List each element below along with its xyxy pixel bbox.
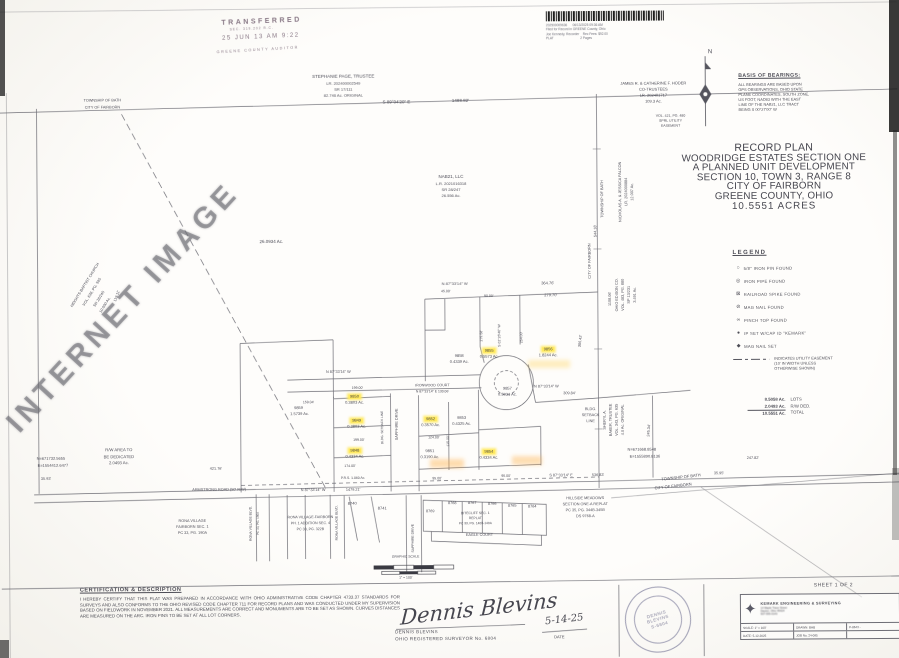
legend-label: MAG NAIL FOUND [744,304,784,309]
plat-label: 82.746 Ac. ORIGINAL [324,94,363,98]
plat-label: 309.84' [563,392,575,396]
iron-pin-found-icon: ○ [733,265,744,271]
sheet-number: SHEET 1 OF 2 [814,582,853,588]
acreage-total-row: 10.5551 Ac.TOTAL [748,409,834,417]
easement-note: INDICATES UTILITY EASEMENT(10' IN WIDTH … [774,355,833,370]
firm-name: KEMARK ENGINEERING & SURVEYING [760,601,840,606]
recorder-stamp: 202500009636 06/13/2025 09:36 AMFiled fo… [546,10,696,40]
plat-label: 90.00' [484,295,493,299]
plat-label: 9849 [351,419,363,423]
plat-label: PC 33, PG. 190A [178,532,207,536]
compass-logo-icon: ✦ [744,601,757,616]
pinch-top-found-icon: ∞ [733,317,744,323]
legend-label: MAG NAIL SET [744,343,777,348]
text-line: 25 JUN 13 AM 9:22 [222,30,352,41]
plat-label: 12.007 Ac. [631,183,635,201]
firm-title-block: ✦ KEMARK ENGINEERING & SURVEYING 14 Mapl… [740,593,899,640]
plat-label: SAPPHIRE DRIVE [412,524,416,552]
plat-label: 0.3570 Ac. [421,423,440,427]
plat-label: 9853 [457,416,466,420]
plat-label: 8741 [378,506,387,510]
legend-label: 5/8" IRON PIN FOUND [744,265,793,270]
surveyor-seal-center: DENNISBLEVINSS-6804 [628,590,688,650]
plat-label: CITY OF FAIRBORN [589,243,593,278]
text-line: OTHERWISE SHOWN) [774,365,832,370]
firm-table-cell: DRAWN: BHB [793,623,846,630]
plat-label: 8767 [468,502,476,506]
certification-block: CERTIFICATION & DESCRIPTION I HEREBY CER… [80,585,400,619]
scan-artifact [889,0,899,132]
plat-label: SR 28/247 [442,188,461,192]
plat-label: 279.58' [480,330,484,341]
plat-label: BAKER, TRUSTEE [610,404,614,437]
plat-label: 109.3 Ac. [645,100,662,104]
scan-artifact [893,130,897,475]
plat-label: SAPPHIRE DRIVE [396,408,400,440]
plat-label: 544.18' [594,225,598,237]
plat-label: 8740 [348,502,357,506]
plat-label: TOWNSHIP OF BATH [601,180,605,218]
plat-label: N 87°33'14" W [326,371,351,375]
plat-label: GRAPHIC SCALE [392,556,420,560]
plat-label: S 89°04'20" E [383,100,411,105]
mag-nail-found-icon: ⊘ [733,304,744,310]
plat-label: 26.556 Ac. [442,194,461,198]
plat-label: 9857 [503,387,512,391]
certification-title: CERTIFICATION & DESCRIPTION [80,585,400,593]
highlighter-smudge [430,459,464,468]
plat-label: E=1555890.8136 [630,455,661,459]
plat-label: 8766 [488,503,496,507]
plat-label: BLDG. [585,408,596,412]
plat-label: 0.3803 Ac. [347,425,366,429]
plat-label: 1" = 100' [399,577,412,580]
plat-label: IRONWOOD COURT [415,384,449,388]
plat-label: LR. 202400002549 [326,82,360,86]
plat-label: JAMES R. & CATHERINE F. HODER [620,81,686,85]
plat-label: 247.82' [747,457,759,461]
plat-label: OHIO EDISON CO. [616,278,620,311]
plat-label: 9851 [425,449,434,453]
plat-label: R/W AREA TO [105,448,132,452]
auditor-transfer-stamp: TRANSFERREDSEC. 319.202 R.C.25 JUN 13 AM… [221,14,352,53]
plat-label: BE DEDICATED [104,455,135,459]
plat-label: 279.70' [544,293,557,297]
plat-label: SR 17/111 [334,88,352,92]
page-title: RECORD PLANWOODRIDGE ESTATES SECTION ONE… [654,143,894,212]
plat-label: N=671732.5655 [37,457,66,461]
plat-label: DS 9768-A [576,515,595,519]
surveyor-name: DENNIS BLEVINS [395,629,438,634]
legend-label: IRON PIPE FOUND [744,278,786,283]
plat-label: RONA VILLAGE BLVD. [250,506,254,541]
plat-label: 0.4339 Ac. [450,360,469,364]
plat-label: 1488.82' [452,99,469,104]
firm-table-cell: DATE: 5-12-2025 [741,632,793,639]
plat-label: SECTION ONE-A REPLAT [563,503,608,507]
plat-label: BLDG. SETBACK LINE [381,411,384,444]
highlighter-smudge [512,456,542,465]
plat-label: N 87°33'14" W [534,385,559,389]
plat-label: SHERYL A. [604,410,608,429]
firm-table-row: SCALE: 1" = 100'DRAWN: BHBP-8643 - [741,622,899,631]
legend-item: ⊘MAG NAIL FOUND [733,303,895,310]
legend-label: PINCH TOP FOUND [744,317,787,322]
plat-label: RONA VILLAGE [178,520,206,524]
railroad-spike-found-icon: ⊠ [733,291,744,297]
plat-label: VOL. 483, PG. 880 [622,279,626,311]
acreage-label: TOTAL [791,410,805,418]
plat-label: 0.4334 Ac. [479,456,498,460]
legend-easement: INDICATES UTILITY EASEMENT(10' IN WIDTH … [733,355,895,371]
plat-label: 536.83' [592,474,604,478]
plat-label: 0.4325 Ac. [452,422,471,426]
basis-of-bearings-title: BASIS OF BEARINGS: [738,72,856,79]
plat-label: 1479.21' [346,489,360,493]
plat-label: S 02°26'46" W [498,324,502,347]
firm-table-cell: P-8643 - [846,623,899,630]
plat-label: CITY OF FAIRBORN [85,106,120,110]
plat-label: 254.00' [520,332,524,343]
plat-label: E=1554412.6477 [38,464,69,468]
plat-label: VOL. 343, PG. 635 [616,404,620,436]
graphic-scale-bar [374,565,454,575]
legend-label: RAILROAD SPIKE FOUND [744,291,801,296]
north-arrow-icon [699,56,711,126]
text-line: 10.5551 ACRES [654,200,894,211]
firm-table-cell [846,631,899,638]
firm-table-cell: JOB No. 24-085 [793,631,846,638]
legend-items: ○5/8" IRON PIN FOUND◎IRON PIPE FOUND⊠RAI… [733,264,896,349]
plat-label: PC 35, PG. 344B-345B [566,509,605,513]
plat-label: 8768 [448,502,456,506]
plat-label: PH. 1 ADDITION SEC. 4 [291,522,330,526]
firm-table: SCALE: 1" = 100'DRAWN: BHBP-8643 -DATE: … [741,622,899,639]
plat-label: S 87°33'14" E [549,474,572,478]
plat-label: N 87°33'14" W [301,489,326,493]
plat-label: 4.0 Ac. ORIGINAL [622,404,626,435]
plat-label: 35.95' [714,472,724,476]
plat-label: 35.93' [41,478,51,482]
plat-label: NAB21, LLC [438,175,463,180]
plat-label: 0.5573 Ac. [480,355,499,359]
ip-set-icon: ● [733,330,744,336]
scanned-plat-page: INTERNET IMAGE TRANSFERREDSEC. 319.202 R… [0,0,899,658]
legend-label: IP SET W/CAP ID "KEMARK" [744,330,806,335]
plat-label: FAIRBORN SEC. 1 [176,526,209,530]
plat-label: N=671668.8548 [628,448,657,452]
mag-nail-set-icon: ◆ [733,343,744,349]
firm-header: ✦ KEMARK ENGINEERING & SURVEYING 14 Mapl… [741,594,899,623]
plat-label: N 87°33'14" W [442,282,468,286]
plat-label: SP 13/231 [628,286,632,304]
plat-label: L.R. 2021016318 [436,182,467,186]
acreage-value: 10.5551 Ac. [748,410,786,418]
plat-label: 199.00' [353,439,364,443]
scan-artifact [0,640,9,658]
plat-label: 8764 [528,505,536,509]
plat-label: RONA VILLAGE BLVD. [336,505,340,540]
firm-address: 14 Maple Trace StreetDayton, Ohio 454249… [761,606,842,616]
easement-line-sample-icon [733,359,769,360]
legend-item: ⊠RAILROAD SPIKE FOUND [733,290,895,297]
plat-label: RONA VILLAGE-FAIRBORN [287,516,333,520]
legend-item: ◎IRON PIPE FOUND [733,277,895,284]
plat-label: 9856 [542,347,554,351]
plat-label: 124.00' [428,436,439,440]
plat-label: 9855 [483,349,495,353]
legend-item: ●IP SET W/CAP ID "KEMARK" [733,329,895,336]
plat-label: LR. 202401717 [640,93,667,97]
scan-artifact [892,468,899,540]
plat-label: EAGLE COURT [466,534,493,538]
plat-label: NICHOLAS A. & JESSICA FALCON [619,162,623,222]
firm-table-cell: SCALE: 1" = 100' [741,624,793,631]
plat-label: 9859 [294,406,303,410]
acreage-totals: 8.5058 Ac.LOTS2.0493 Ac.R/W DED.10.5551 … [747,396,833,417]
plat-label: 0.3803 Ac. [345,401,364,405]
plat-label: EASEMENT [661,125,680,129]
plat-label: 364.76' [541,281,554,285]
plat-label: 115.00' [447,435,451,446]
legend-item: ∞PINCH TOP FOUND [733,316,895,323]
basis-of-bearings: BASIS OF BEARINGS: ALL BEARINGS ARE BASE… [738,72,856,112]
recorder-stamp-text: 202500009636 06/13/2025 09:36 AMFiled fo… [546,22,696,40]
plat-label: 1.8244 Ac. [539,353,558,357]
plat-label: 9848 [349,449,361,453]
highlighter-smudge [528,360,570,368]
plat-label: STEPHANIE PAGE, TRUSTEE [312,74,374,79]
plat-label: 199.00' [352,387,363,391]
plat-label: 0.5031 Ac. [498,393,517,397]
legend-item: ◆MAG NAIL SET [733,342,895,349]
date-label: DATE [554,634,564,639]
firm-table-row: DATE: 5-12-2025JOB No. 24-085 [741,630,899,639]
certification-body: I HEREBY CERTIFY THAT THIS PLAT WAS PREP… [80,594,400,619]
plat-label: 159.04' [303,401,314,405]
plat-label: CO-TRUSTEES [639,87,668,91]
barcode [546,10,664,21]
plat-label: PC 33, PG. 322B [297,528,325,532]
plat-label: ARMSTRONG ROAD (50' R/W) [192,489,246,493]
plat-label: 8769 [426,510,434,514]
plat-label: 95.00' [501,475,510,479]
plat-label: 9858 [455,354,464,358]
plat-label: PC 33, PG. 140B-140A [459,522,492,525]
plat-label: 1108.06' [609,292,613,306]
legend-title: LEGEND [732,249,894,256]
plat-label: 0.4334 Ac. [345,455,364,459]
plat-label: LINE [586,420,594,424]
plat-label: 26.0934 Ac. [259,240,283,245]
basis-of-bearings-body: ALL BEARINGS ARE BASED UPONGPS OBSERVATI… [738,81,856,112]
legend: LEGEND ○5/8" IRON PIN FOUND◎IRON PIPE FO… [732,249,895,418]
legend-item: ○5/8" IRON PIN FOUND [733,264,895,271]
plat-label: REPLAT [469,517,482,520]
plat-label: P.R.S. 1.060 Ac. [341,477,365,481]
plat-label: 9850 [349,395,361,399]
plat-label: 174.00' [344,465,355,469]
plat-label: 421.76' [210,468,222,472]
plat-label: 3.491 Ac. [634,287,638,303]
plat-label: 95.00' [432,477,441,481]
plat-label: SETBACK [582,414,600,418]
scan-artifact [0,0,5,96]
plat-content: INTERNET IMAGE TRANSFERREDSEC. 319.202 R… [0,0,899,658]
plat-label: 45.00' [441,290,450,294]
plat-label: BITECLIFF SEC. 1 [461,512,490,516]
plat-label: 9854 [483,450,495,454]
plat-label: LR. 2024000884 [625,178,629,206]
plat-label: TOWNSHIP OF BATH [84,99,122,103]
plat-label: 9852 [425,417,437,421]
plat-label: 2.0493 Ac. [109,461,129,465]
iron-pipe-found-icon: ◎ [733,278,744,284]
plat-label: 1.5739 Ac. [290,412,309,416]
plat-label: N 87°33'14" E 130.06' [416,390,449,394]
text-line: 937-555-0143 [761,612,841,616]
plat-label: HILLSIDE MEADOWS [566,497,604,501]
north-arrow-label: N [708,49,712,55]
surveyor-title: OHIO REGISTERED SURVEYOR No. 6804 [395,636,496,642]
plat-label: 8765 [508,505,516,509]
text-line: BEING S 00°27'00" W [738,106,856,112]
plat-label: PC 33, PG. 190A [257,512,260,535]
